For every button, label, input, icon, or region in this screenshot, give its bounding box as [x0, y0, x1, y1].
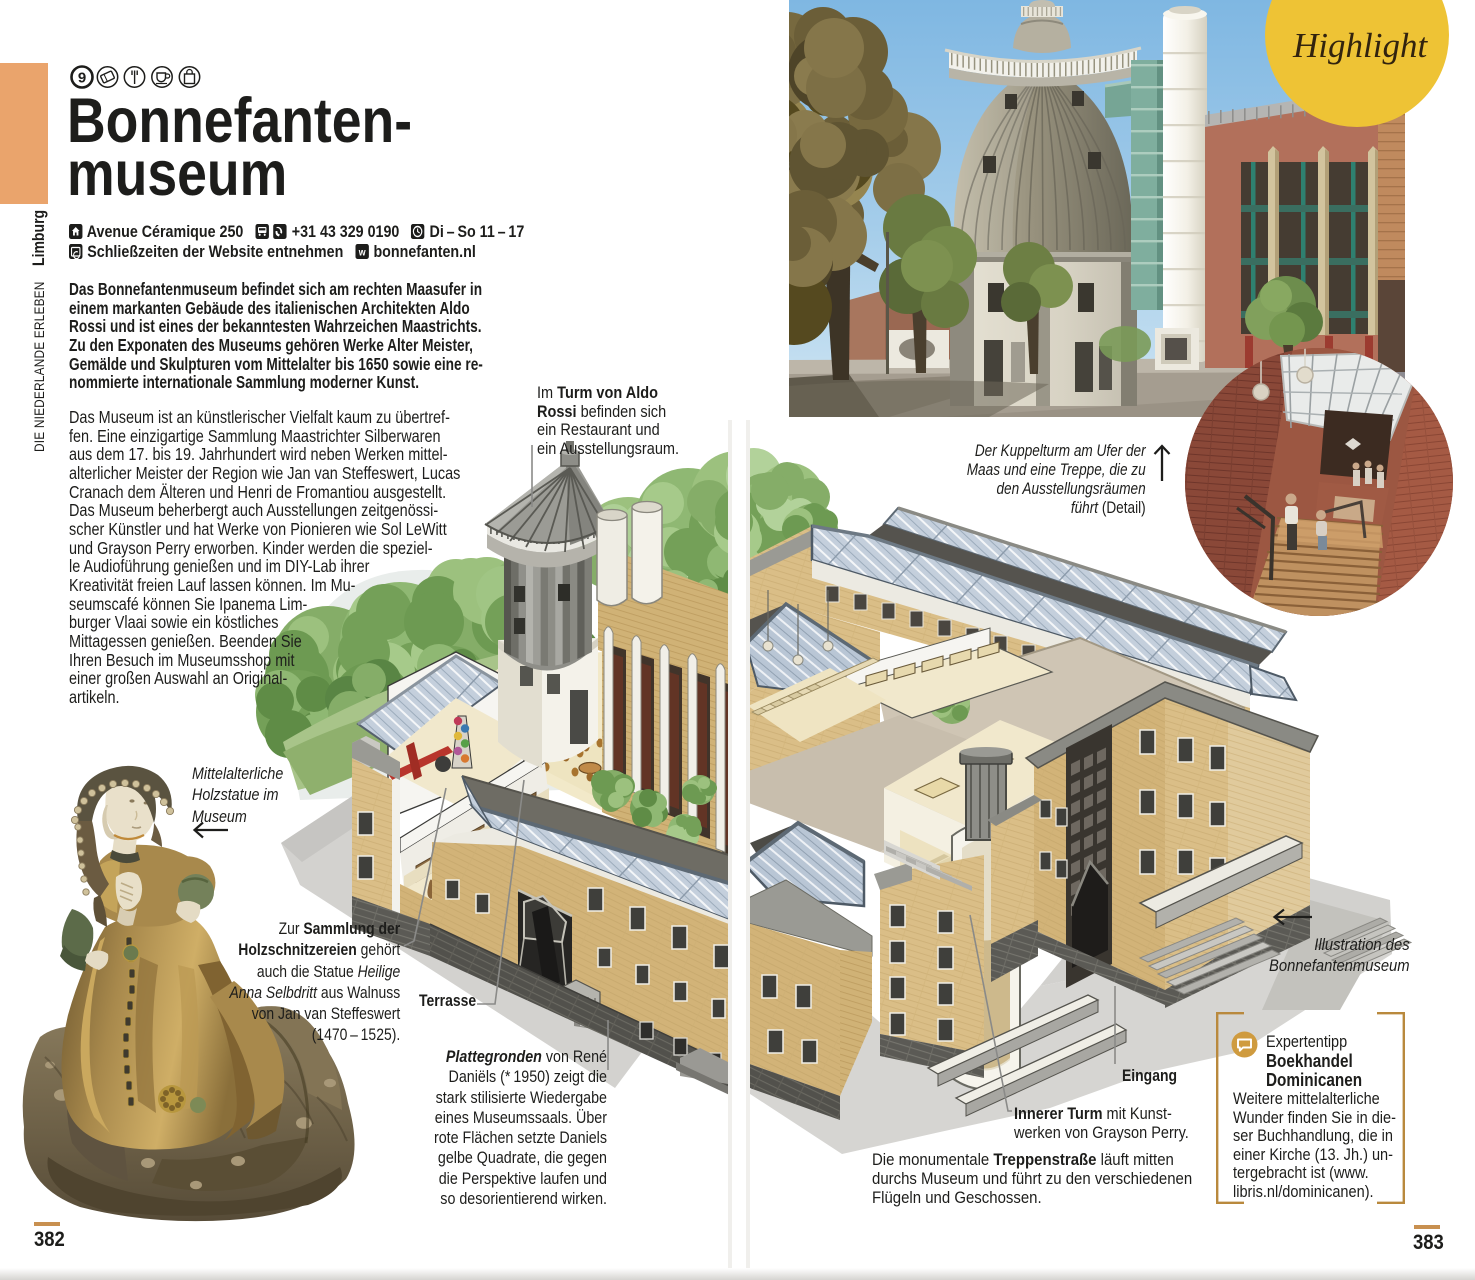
svg-text:9: 9 — [78, 70, 86, 87]
svg-text:w: w — [358, 247, 366, 259]
